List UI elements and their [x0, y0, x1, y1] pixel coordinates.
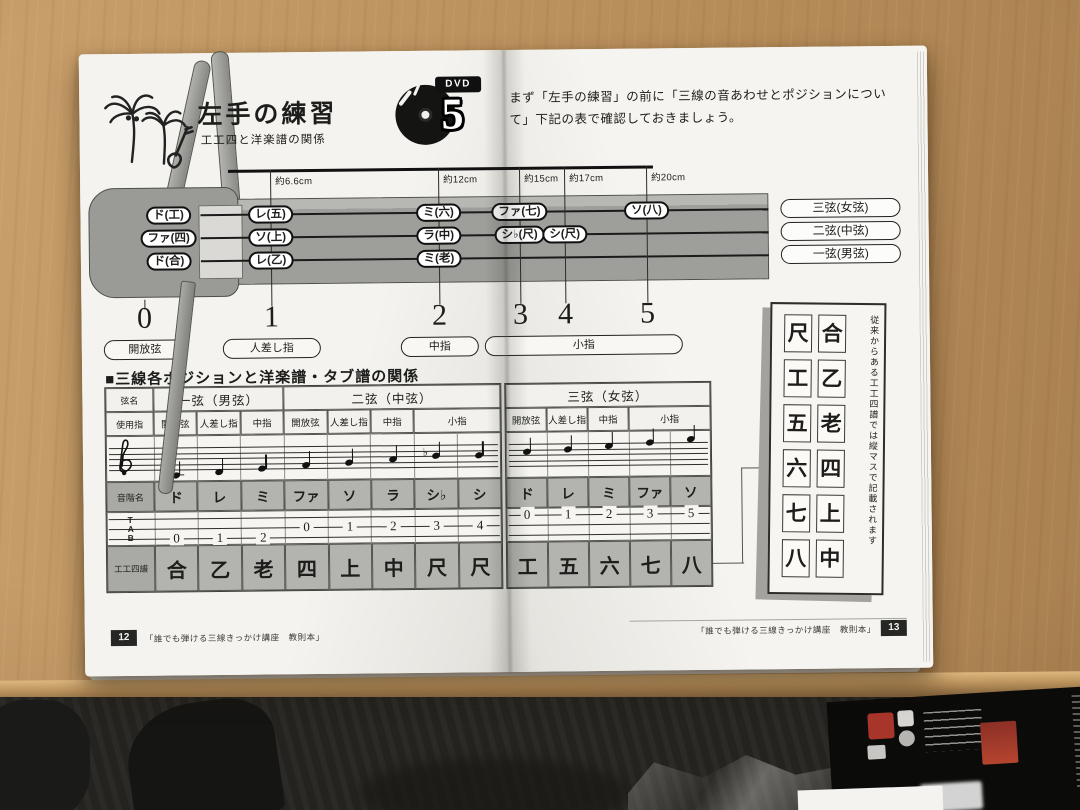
- left-footer-pagenum: 12: [111, 630, 137, 646]
- staff-note-stem: [179, 461, 180, 475]
- row-header-scale: 音階名: [106, 482, 154, 513]
- finger-header: 開放弦: [505, 408, 546, 432]
- row-header-finger: 使用指: [106, 412, 154, 437]
- position-number-0: 0: [137, 304, 152, 334]
- kunkunshi-char-left: 八: [782, 539, 810, 577]
- floor-shadow-left: [0, 700, 90, 810]
- photo-scene: 左手の練習 工工四と洋楽譜の関係 DVD 5 まず「左手の練習」の前に「三線の音…: [0, 0, 1080, 810]
- box-gray-chip: [867, 745, 886, 760]
- measurement-label-2: 約12cm: [443, 171, 477, 185]
- row-header-string-name: 弦名: [105, 388, 153, 413]
- tab-number: 5: [684, 505, 698, 521]
- string-name-label: 三弦(女弦): [780, 198, 900, 218]
- kunkunshi-cell: 上: [328, 543, 372, 589]
- fretted-note-label: シ♭(尺): [495, 226, 545, 245]
- string-group-label: 三弦（女弦）: [505, 382, 710, 408]
- tab-number: 0: [520, 507, 534, 523]
- staff-note-stem: [222, 458, 223, 472]
- string-name-label: 一弦(男弦): [781, 244, 901, 264]
- kunkunshi-cell: 中: [372, 543, 416, 589]
- position-number-1: 1: [264, 302, 279, 332]
- scale-name-cell: ミ: [241, 480, 285, 510]
- scale-name-cell: ファ: [629, 476, 670, 506]
- page-title: 左手の練習: [197, 94, 337, 131]
- dvd-disc-hole: [418, 108, 432, 122]
- kunkunshi-cell: 六: [589, 541, 630, 587]
- kunkunshi-box-caption: 従来からある工工四譜では縦マスで記載されます: [863, 315, 882, 581]
- kunkunshi-char-left: 七: [782, 494, 810, 532]
- scale-name-cell: ラ: [371, 479, 415, 509]
- box-vertical-text: [1071, 695, 1080, 788]
- headstock-note-label: ド(工): [146, 206, 191, 224]
- kunkunshi-char-right: 乙: [817, 360, 845, 398]
- book-spread: 左手の練習 工工四と洋楽譜の関係 DVD 5 まず「左手の練習」の前に「三線の音…: [79, 46, 933, 677]
- kunkunshi-cell: 四: [285, 544, 329, 590]
- fretted-note-label: ミ(六): [416, 203, 461, 221]
- kunkunshi-cell: 八: [671, 540, 712, 586]
- row-header-kunkunshi: 工工四譜: [107, 546, 155, 593]
- left-footer-text: 「誰でも弾ける三線きっかけ講座 教則本」: [145, 631, 325, 645]
- position-table-right: 三弦（女弦）開放弦人差し指中指小指ドレミファソ01235工五六七八: [505, 382, 712, 588]
- white-paper: [798, 785, 944, 810]
- staff-note-stem: [395, 445, 396, 459]
- finger-header: 中指: [240, 410, 284, 434]
- dvd-badge: DVD 5: [395, 76, 484, 157]
- fretted-note-label: ソ(上): [248, 228, 293, 246]
- treble-clef-icon: [114, 437, 136, 481]
- kunkunshi-char-right: 四: [817, 450, 845, 488]
- kunkunshi-char-right: 上: [816, 495, 844, 533]
- fretted-note-label: レ(乙): [249, 251, 294, 269]
- box-spec-text-lines: [923, 709, 983, 752]
- scale-name-cell: ソ: [328, 479, 372, 509]
- tab-number: 4: [473, 517, 487, 533]
- fretted-note-label: ラ(中): [416, 226, 461, 244]
- staff-note-stem: [439, 442, 440, 456]
- headstock-note-label: ド(合): [147, 252, 192, 270]
- tab-number: 1: [561, 506, 575, 522]
- staff-note-stem: [652, 428, 653, 442]
- flat-sign: ♭: [423, 446, 428, 459]
- scale-name-cell: シ: [458, 478, 502, 508]
- kunkunshi-char-right: 中: [816, 540, 844, 578]
- kunkunshi-char-right: 老: [817, 405, 845, 443]
- staff-note-stem: [611, 432, 612, 446]
- staff-note-stem: [265, 455, 266, 469]
- string-group-label: 二弦（中弦）: [283, 384, 500, 410]
- kunkunshi-cell: 七: [630, 540, 671, 586]
- kunkunshi-cell: 尺: [459, 542, 503, 588]
- scale-name-cell: ド: [506, 478, 547, 508]
- scale-name-cell: ミ: [588, 477, 629, 507]
- finger-header: 人差し指: [197, 411, 241, 435]
- kunkunshi-cell: 乙: [198, 545, 242, 591]
- staff-note-stem: [352, 448, 353, 462]
- tab-number: 1: [343, 519, 357, 535]
- kunkunshi-cell: 合: [155, 545, 199, 591]
- row-header-tab: T A B: [107, 512, 155, 547]
- scale-name-cell: レ: [547, 477, 588, 507]
- fretted-note-label: レ(五): [248, 205, 293, 223]
- fretted-note-label: ファ(七): [491, 203, 547, 222]
- string-name-label: 二弦(中弦): [781, 221, 901, 241]
- box-dial-icon: [897, 710, 914, 727]
- finger-header: 開放弦: [284, 410, 328, 434]
- finger-header: 中指: [587, 407, 628, 431]
- kunkunshi-char-left: 五: [783, 404, 811, 442]
- right-footer-pagenum: 13: [881, 620, 907, 636]
- kunkunshi-cell: 工: [507, 542, 548, 588]
- scale-name-cell: シ♭: [414, 479, 458, 509]
- dvd-number: 5: [441, 88, 464, 139]
- tab-number: 3: [643, 505, 657, 521]
- finger-header: 人差し指: [327, 409, 371, 433]
- tab-number: 0: [299, 519, 313, 535]
- tab-number: 2: [386, 518, 400, 534]
- tab-number: 2: [256, 529, 270, 545]
- finger-header: 小指: [414, 408, 501, 433]
- tab-number: 0: [169, 530, 183, 546]
- finger-label-2: 人差し指: [223, 338, 321, 359]
- staff-note-stem: [570, 435, 571, 449]
- tab-number: 2: [602, 506, 616, 522]
- staff-note-stem: [482, 441, 483, 455]
- palm-tree-sanshin-icon: [101, 87, 196, 174]
- kunkunshi-vertical-box: 従来からある工工四譜では縦マスで記載されます 合乙老四上中尺工五六七八: [767, 302, 886, 595]
- box-red-photo: [980, 721, 1018, 765]
- scale-name-cell: ファ: [284, 480, 328, 510]
- finger-header: 中指: [370, 409, 414, 433]
- scale-name-cell: ソ: [670, 476, 711, 506]
- box-dial-icon-2: [898, 730, 915, 747]
- position-number-4: 4: [558, 299, 573, 329]
- fretted-note-label: ソ(八): [624, 201, 669, 219]
- scale-name-cell: レ: [198, 481, 242, 511]
- staff-note-stem: [309, 451, 310, 465]
- measurement-label-4: 約17cm: [569, 170, 603, 184]
- fretted-note-label: シ(尺): [542, 225, 587, 243]
- staff-note-stem: [693, 425, 694, 439]
- measurement-label-1: 約6.6cm: [275, 173, 312, 187]
- page-subtitle: 工工四と洋楽譜の関係: [201, 131, 326, 148]
- finger-header: 小指: [628, 406, 710, 431]
- kunkunshi-char-left: 尺: [784, 314, 812, 352]
- position-number-5: 5: [640, 298, 655, 328]
- staff-note-stem: [529, 438, 530, 452]
- headstock-note-label: ファ(四): [141, 229, 197, 248]
- box-red-patch: [867, 712, 895, 740]
- finger-label-4: 小指: [485, 334, 683, 356]
- kunkunshi-char-left: 工: [783, 359, 811, 397]
- kunkunshi-cell: 尺: [415, 543, 459, 589]
- position-number-3: 3: [513, 300, 528, 330]
- fretted-note-label: ミ(老): [416, 249, 461, 267]
- tab-number: 1: [213, 530, 227, 546]
- kunkunshi-char-right: 合: [818, 315, 846, 353]
- kunkunshi-char-left: 六: [783, 449, 811, 487]
- measurement-label-5: 約20cm: [651, 169, 685, 183]
- measurement-label-3: 約15cm: [524, 170, 558, 184]
- intro-paragraph: まず「左手の練習」の前に「三線の音あわせとポジションについて」下記の表で確認して…: [509, 84, 901, 132]
- kunkunshi-cell: 五: [548, 541, 589, 587]
- tab-number: 3: [430, 518, 444, 534]
- finger-label-3: 中指: [401, 336, 479, 357]
- position-number-2: 2: [432, 301, 447, 331]
- finger-header: 人差し指: [546, 407, 587, 431]
- kunkunshi-cell: 老: [242, 544, 286, 590]
